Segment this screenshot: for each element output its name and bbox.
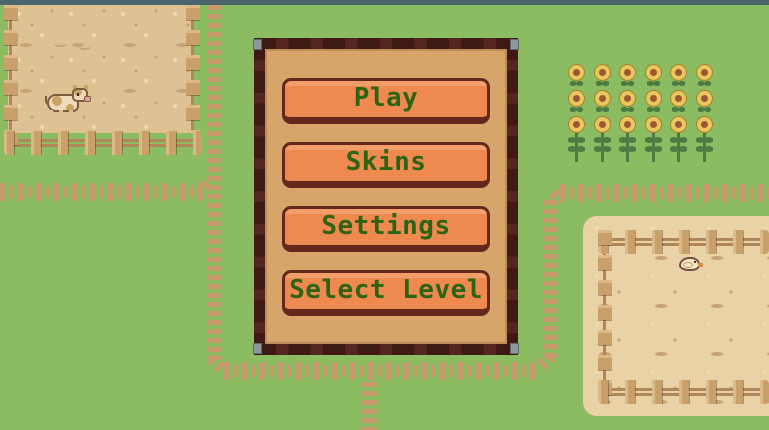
sunflower (645, 90, 663, 116)
path-horizontal-bottom (224, 362, 540, 380)
sunflower (696, 64, 714, 90)
hoof-track (54, 40, 67, 47)
sunflower (594, 90, 612, 116)
game-scene: Play Skins Settings Select Level (0, 0, 769, 430)
sunflower (670, 116, 688, 142)
fence-left (4, 5, 18, 151)
sunflower (645, 64, 663, 90)
corner-rivet-icon (253, 343, 262, 354)
pen-bottom-right (583, 216, 769, 416)
path-vertical-left (207, 5, 222, 360)
fence-left (598, 230, 612, 404)
corner-rivet-icon (510, 39, 519, 50)
sunflower (696, 90, 714, 116)
fence-top (598, 230, 769, 254)
cow (45, 85, 91, 119)
corner-rivet-icon (253, 39, 262, 50)
hoof-track (78, 43, 91, 50)
chick (677, 254, 705, 275)
sunflower (619, 90, 637, 116)
corner-rivet-icon (510, 343, 519, 354)
fence-bottom (4, 131, 202, 155)
path-branch-bottom (362, 382, 377, 430)
fence-right (186, 5, 200, 131)
settings-button[interactable]: Settings (282, 206, 490, 252)
path-vertical-right (543, 200, 558, 360)
pen-dirt (8, 5, 194, 133)
play-button[interactable]: Play (282, 78, 490, 124)
sunflower (594, 116, 612, 142)
sunflower (594, 64, 612, 90)
skins-button[interactable]: Skins (282, 142, 490, 188)
sunflower (568, 64, 586, 90)
sunflower (568, 90, 586, 116)
fence-bottom (598, 380, 769, 404)
sunflower (619, 64, 637, 90)
path-horizontal-left (0, 183, 204, 201)
sunflower (670, 64, 688, 90)
main-menu-panel: Play Skins Settings Select Level (254, 38, 518, 355)
select-level-button[interactable]: Select Level (282, 270, 490, 316)
sunflower (645, 116, 663, 142)
sunflower (670, 90, 688, 116)
pen-top-left (4, 5, 202, 157)
sunflower-patch (568, 64, 730, 176)
sunflower (568, 116, 586, 142)
path-horizontal-right (560, 184, 769, 202)
sunflower (619, 116, 637, 142)
sunflower (696, 116, 714, 142)
